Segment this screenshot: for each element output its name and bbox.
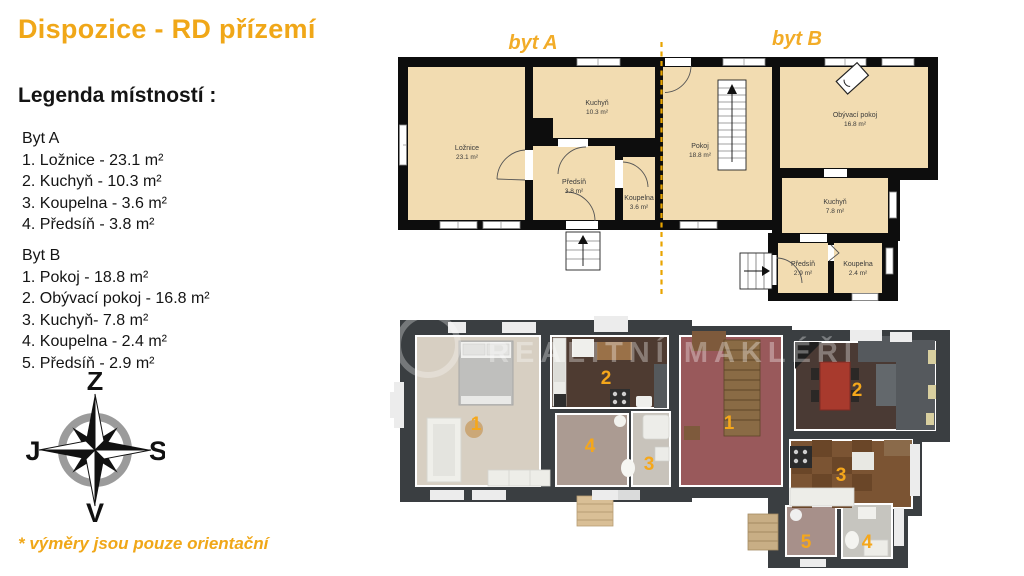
legend-heading: Legenda místností : bbox=[18, 84, 216, 108]
room-pokoj bbox=[663, 67, 772, 220]
room-loznice bbox=[408, 67, 525, 220]
svg-text:18.8 m²: 18.8 m² bbox=[689, 152, 712, 159]
byt-a-item: 2. Kuchyň - 10.3 m² bbox=[22, 171, 167, 193]
footnote: * výměry jsou pouze orientační bbox=[18, 534, 268, 554]
number-a-kitchen: 2 bbox=[601, 368, 612, 389]
svg-text:16.8 m²: 16.8 m² bbox=[844, 121, 867, 128]
svg-text:Koupelna: Koupelna bbox=[843, 261, 873, 268]
plan-3d: REALITNÍ MAKLÉŘI 1 2 3 4 1 2 3 4 5 bbox=[390, 310, 1024, 576]
page-title: Dispozice - RD přízemí bbox=[18, 14, 316, 45]
stairs-entrance-b bbox=[740, 253, 772, 289]
svg-text:Kuchyň: Kuchyň bbox=[585, 100, 608, 107]
byt-a-name: Byt A bbox=[22, 128, 167, 150]
byt-a-item: 1. Ložnice - 23.1 m² bbox=[22, 150, 167, 172]
floorplan-page: Dispozice - RD přízemí Legenda místností… bbox=[0, 0, 1024, 576]
svg-text:Předsíň: Předsíň bbox=[562, 179, 586, 186]
compass-rose-icon: Z J S V bbox=[25, 372, 165, 522]
byt-b-name: Byt B bbox=[22, 245, 210, 267]
legend-byt-a: Byt A 1. Ložnice - 23.1 m² 2. Kuchyň - 1… bbox=[22, 128, 167, 236]
byt-b-item: 5. Předsíň - 2.9 m² bbox=[22, 353, 210, 375]
svg-text:Kuchyň: Kuchyň bbox=[823, 199, 846, 206]
number-b-bath: 4 bbox=[862, 532, 873, 553]
compass-top-label: Z bbox=[87, 372, 104, 396]
plan-2d: byt A byt B bbox=[390, 30, 1024, 315]
byt-b-item: 1. Pokoj - 18.8 m² bbox=[22, 267, 210, 289]
compass-left-label: J bbox=[25, 436, 40, 466]
svg-text:Koupelna: Koupelna bbox=[624, 195, 654, 202]
room-predsin-b bbox=[778, 243, 828, 293]
svg-text:2.4 m²: 2.4 m² bbox=[849, 270, 868, 277]
number-a-bedroom: 1 bbox=[471, 414, 482, 435]
byt-b-item: 4. Koupelna - 2.4 m² bbox=[22, 331, 210, 353]
svg-text:10.3 m²: 10.3 m² bbox=[586, 109, 609, 116]
svg-text:Ložnice: Ložnice bbox=[455, 145, 479, 152]
byt-b-item: 2. Obývací pokoj - 16.8 m² bbox=[22, 288, 210, 310]
number-b-room: 1 bbox=[724, 413, 735, 434]
svg-text:3.6 m²: 3.6 m² bbox=[630, 204, 649, 211]
plan2d-byt-a-label: byt A bbox=[508, 32, 557, 54]
number-a-hall: 4 bbox=[585, 436, 596, 457]
svg-text:3.8 m²: 3.8 m² bbox=[565, 188, 584, 195]
legend-byt-b: Byt B 1. Pokoj - 18.8 m² 2. Obývací poko… bbox=[22, 245, 210, 374]
svg-text:Předsíň: Předsíň bbox=[791, 261, 815, 268]
byt-a-item: 4. Předsíň - 3.8 m² bbox=[22, 214, 167, 236]
byt-a-item: 3. Koupelna - 3.6 m² bbox=[22, 193, 167, 215]
plan2d-byt-b-label: byt B bbox=[772, 30, 822, 50]
svg-text:REALITNÍ MAKLÉŘI: REALITNÍ MAKLÉŘI bbox=[488, 335, 858, 369]
stairs-pokoj bbox=[718, 80, 746, 170]
rooms-2d bbox=[408, 67, 928, 293]
number-b-hall: 5 bbox=[801, 532, 812, 553]
svg-text:Pokoj: Pokoj bbox=[691, 143, 709, 150]
compass-bottom-label: V bbox=[86, 498, 104, 522]
number-a-bath: 3 bbox=[644, 454, 655, 475]
byt-b-item: 3. Kuchyň- 7.8 m² bbox=[22, 310, 210, 332]
svg-text:7.8 m²: 7.8 m² bbox=[826, 208, 845, 215]
stairs-entrance-a bbox=[566, 232, 600, 270]
svg-text:23.1 m²: 23.1 m² bbox=[456, 154, 479, 161]
entrance-steps-b bbox=[748, 514, 778, 550]
entrance-steps-a bbox=[577, 496, 613, 526]
number-b-kitchen: 3 bbox=[836, 465, 847, 486]
compass-right-label: S bbox=[149, 436, 165, 466]
svg-text:2.9 m²: 2.9 m² bbox=[794, 270, 813, 277]
room-koupelna-b bbox=[834, 243, 882, 293]
number-b-living: 2 bbox=[852, 380, 863, 401]
svg-text:Obývací pokoj: Obývací pokoj bbox=[833, 112, 878, 119]
